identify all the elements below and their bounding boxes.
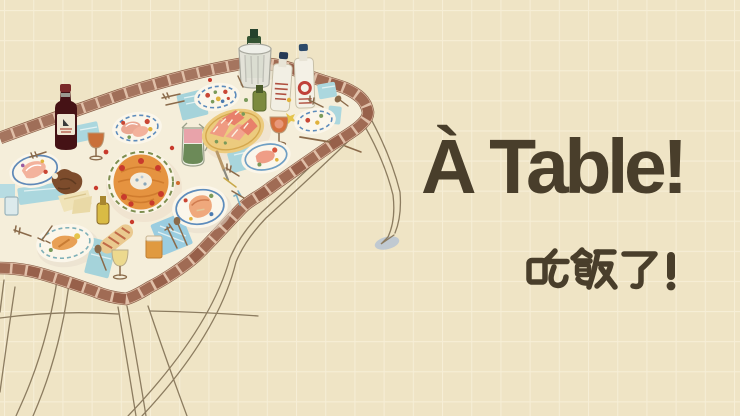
svg-text:À Table!: À Table! [421,123,688,210]
